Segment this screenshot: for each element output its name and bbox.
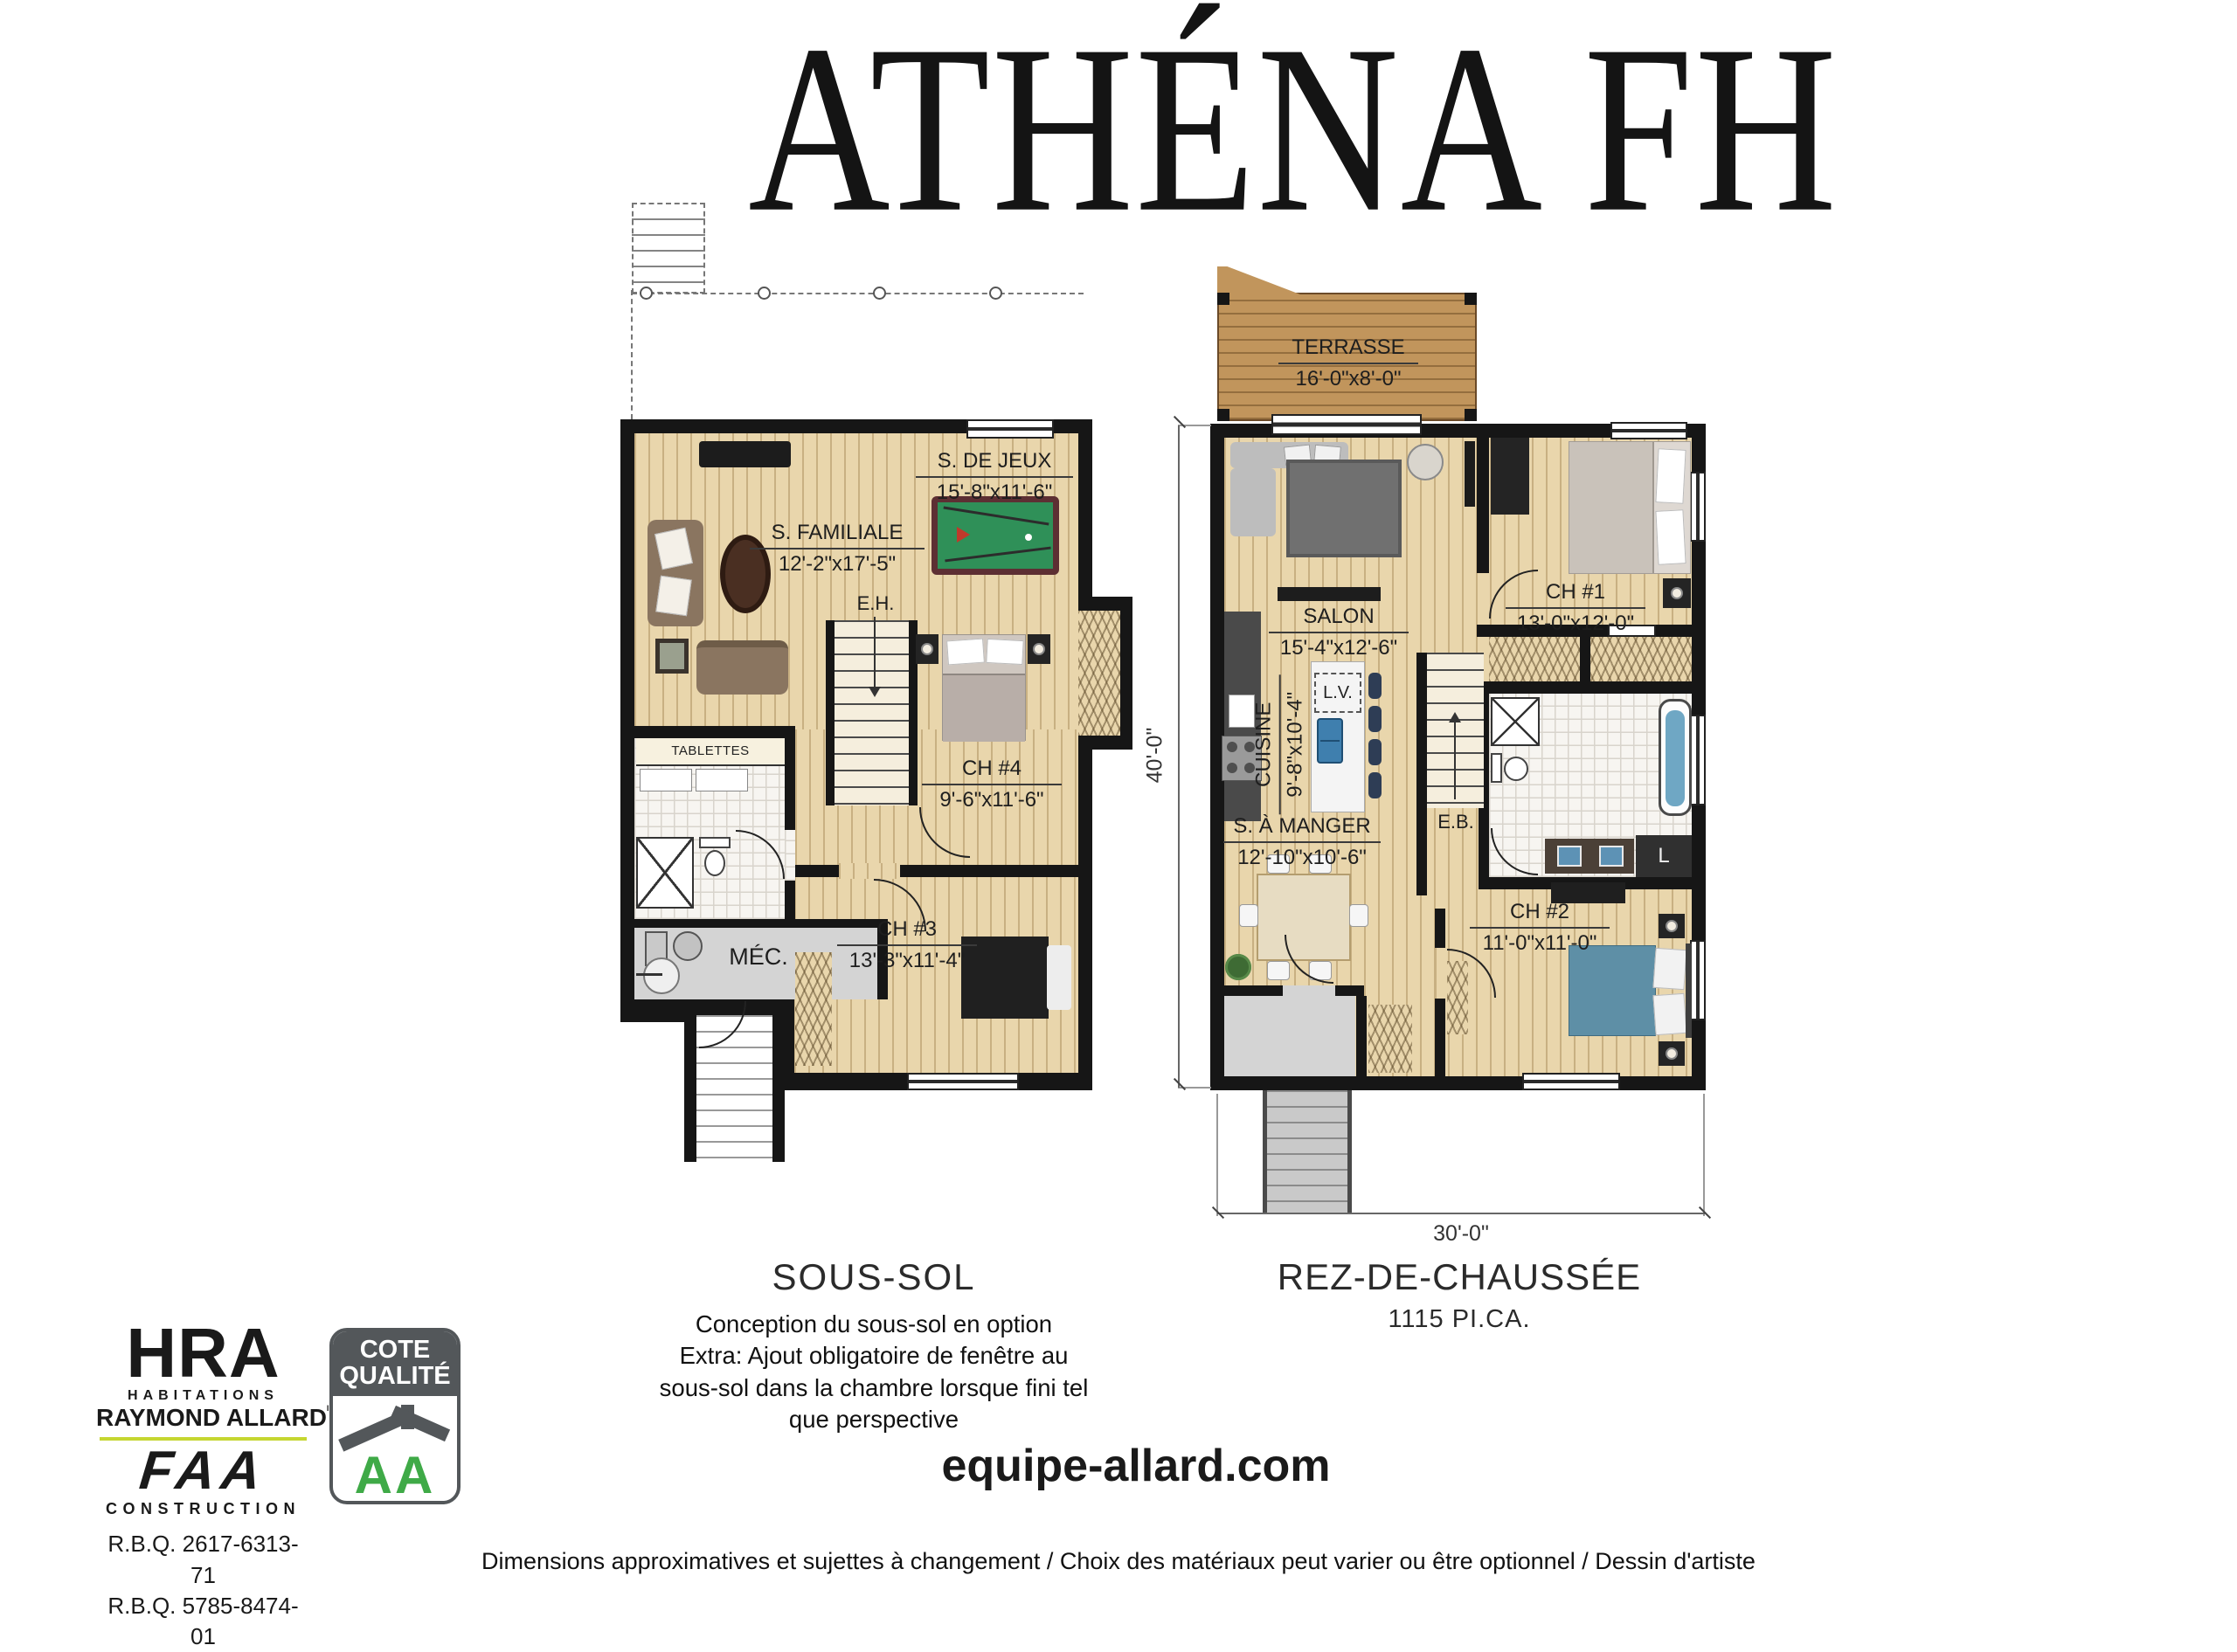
nightstand — [1659, 1041, 1685, 1066]
badge-line2: QUALITÉ — [333, 1363, 457, 1389]
closet-divider — [1580, 637, 1590, 681]
room-label-familiale: S. FAMILIALE 12'-2"x17'-5" — [750, 521, 925, 577]
closet-entry — [1368, 1005, 1412, 1073]
chair — [1267, 961, 1290, 980]
stool — [1368, 739, 1382, 765]
window — [1522, 1073, 1620, 1090]
cabinet — [640, 769, 692, 791]
pool-ball — [1025, 534, 1032, 541]
brand-initials: HRA — [96, 1321, 310, 1386]
wall-salon-ch1 — [1477, 438, 1489, 573]
pillow — [946, 639, 985, 666]
wall-bath-top-g — [1479, 681, 1692, 694]
website: equipe-allard.com — [786, 1440, 1486, 1492]
window — [966, 419, 1054, 439]
toilet-bowl-ground — [1504, 757, 1528, 781]
closet-ch1-strip — [1489, 637, 1692, 681]
page-title: ATHÉNA FH — [680, 0, 1907, 232]
basement-caption: SOUS-SOL — [559, 1256, 1188, 1298]
dishwasher-label: L.V. — [1323, 683, 1353, 702]
vanity — [1545, 839, 1634, 874]
badge-line1: COTE — [333, 1337, 457, 1363]
bed-ch1 — [1569, 441, 1691, 574]
basement-note-3: sous-sol dans la chambre lorsque fini te… — [559, 1372, 1188, 1404]
dim-line-depth — [1178, 425, 1180, 1088]
basement-stair-stub-wall — [684, 1015, 696, 1162]
duvet — [1569, 442, 1654, 573]
brand-rbq1: R.B.Q. 2617-6313-71 — [96, 1529, 310, 1590]
dryer-basement — [673, 931, 703, 961]
bed-ch4 — [942, 634, 1026, 741]
basement-caption-block: SOUS-SOL Conception du sous-sol en optio… — [559, 1256, 1188, 1435]
pillow — [1652, 993, 1686, 1035]
water-heater — [643, 957, 680, 994]
badge-grade: AA — [333, 1445, 457, 1504]
toilet-tank — [699, 837, 731, 848]
ground-caption-block: REZ-DE-CHAUSSÉE 1115 PI.CA. — [1188, 1256, 1730, 1334]
basement-stair-stub-wall — [772, 1015, 785, 1162]
pool-cue — [944, 506, 1049, 525]
brand-rbq2: R.B.Q. 5785-8474-01 — [96, 1591, 310, 1652]
room-label-ch2: CH #2 11'-0"x11'-0" — [1470, 900, 1610, 957]
window — [1690, 715, 1706, 805]
pool-table — [932, 496, 1059, 575]
loveseat — [696, 640, 788, 695]
porch-dashed-beam — [632, 293, 1084, 294]
ground-caption: REZ-DE-CHAUSSÉE — [1188, 1256, 1730, 1298]
shelves-label: TABLETTES — [671, 743, 749, 758]
brand-habitations: HABITATIONS — [96, 1388, 310, 1404]
deck-post-sq — [1465, 409, 1477, 421]
shelf-unit: TABLETTES — [636, 738, 785, 766]
room-label-ch3: CH #3 13'-3"x11'-4" — [837, 917, 977, 974]
tv-unit — [1465, 441, 1475, 507]
chair — [1349, 904, 1368, 927]
room-label-manger: S. À MANGER 12'-10"x10'-6" — [1223, 814, 1381, 871]
basement-note-2: Extra: Ajout obligatoire de fenêtre au — [559, 1340, 1188, 1372]
stool — [1368, 706, 1382, 732]
cabinet — [696, 769, 748, 791]
door-gap-ch3 — [839, 863, 900, 879]
ground-area: 1115 PI.CA. — [1188, 1305, 1730, 1334]
deck-post-sq — [1465, 293, 1477, 305]
pool-rack — [957, 527, 970, 543]
dim-width-label: 30'-0" — [1409, 1221, 1513, 1247]
window — [1690, 472, 1706, 542]
wall-bath-right — [785, 726, 795, 919]
deck-post-sq — [1217, 293, 1229, 305]
washer-ground: L — [1636, 835, 1692, 877]
mech-label: MÉC. — [706, 944, 811, 971]
floorplan-sheet: { "title": "ATHÉNA FH", "basement": { "c… — [0, 0, 2237, 1627]
dishwasher-box: L.V. — [1314, 673, 1361, 713]
sofa-pillow — [655, 576, 691, 617]
shower-ground — [1491, 697, 1540, 746]
shower — [636, 837, 694, 909]
sofa — [648, 520, 703, 626]
stairs-up-label: E.H. — [841, 592, 911, 615]
bathtub — [1659, 699, 1692, 816]
brand-construction: CONSTRUCTION — [96, 1500, 310, 1518]
basement-note-1: Conception du sous-sol en option — [559, 1309, 1188, 1340]
quality-badge: COTE QUALITÉ AA — [329, 1328, 461, 1504]
badge-header: COTE QUALITÉ — [333, 1331, 457, 1396]
room-label-jeux: S. DE JEUX 15'-8"x11'-6" — [916, 449, 1073, 506]
nightstand — [1028, 634, 1050, 664]
roof-icon — [340, 1403, 450, 1448]
room-label-cuisine: CUISINE 9'-8"x10'-4" — [1252, 674, 1309, 814]
bed-ch3-pillows — [1047, 945, 1071, 1010]
chair — [1239, 904, 1258, 927]
deck-post-sq — [1217, 409, 1229, 421]
water-heater-pipe — [636, 973, 662, 976]
wardrobe-ch1 — [1491, 438, 1529, 515]
stairs-arrow-head — [869, 687, 881, 697]
kitchen-sink — [1229, 695, 1255, 728]
stairs-arrow-line — [874, 617, 876, 688]
vanity-sink — [1599, 846, 1624, 867]
island-sink — [1317, 718, 1343, 764]
pool-cue — [945, 547, 1050, 563]
room-label-terrasse: TERRASSE 16'-0"x8'-0" — [1278, 335, 1418, 392]
stairs-down-label: E.B. — [1421, 811, 1491, 833]
wall-entry-closet — [1356, 996, 1367, 1076]
sectional-chaise — [1230, 468, 1276, 536]
wall-stairs-left-g — [1416, 653, 1427, 810]
vanity-sink — [1557, 846, 1582, 867]
deck-post — [989, 287, 1002, 300]
console-table — [1278, 587, 1381, 601]
wall-ch2-west — [1435, 909, 1445, 1090]
stairs-basement — [835, 620, 909, 805]
washer-label: L — [1658, 844, 1669, 867]
dim-extension — [1216, 1094, 1218, 1216]
pillow — [1652, 948, 1686, 990]
stairs-arrow-line-g — [1454, 721, 1456, 799]
stool — [1368, 772, 1382, 798]
door-gap-ch2 — [1435, 948, 1445, 999]
accent-chair — [1407, 444, 1444, 480]
bed-ch2 — [1569, 945, 1656, 1036]
deck-post — [758, 287, 771, 300]
porch-dashed-edge — [631, 290, 633, 419]
duvet — [943, 674, 1025, 742]
door-gap-bath — [785, 830, 795, 881]
plant — [1225, 954, 1251, 980]
nightstand — [916, 634, 938, 664]
headboard-ch2 — [1686, 944, 1692, 1038]
room-label-salon: SALON 15'-4"x12'-6" — [1269, 605, 1409, 661]
stool — [1368, 673, 1382, 699]
wall-stairs-left — [826, 620, 835, 805]
brand-rule — [100, 1437, 307, 1441]
window — [1690, 940, 1706, 1020]
toilet-tank-ground — [1491, 753, 1502, 783]
room-label-ch1: CH #1 13'-0"x12'-0" — [1506, 580, 1645, 637]
window — [907, 1073, 1019, 1090]
pillow — [986, 639, 1023, 665]
dim-line-width — [1217, 1213, 1705, 1214]
wall-bath-top — [634, 726, 785, 738]
pillow — [1655, 448, 1686, 504]
side-table — [655, 639, 689, 674]
dim-extension — [1703, 1094, 1705, 1216]
front-steps — [1263, 1090, 1352, 1213]
porch-dashed-stairs — [632, 203, 705, 294]
basement-note-4: que perspective — [559, 1404, 1188, 1435]
stairs-arrow-head-g — [1449, 712, 1461, 722]
disclaimer: Dimensions approximatives et sujettes à … — [332, 1548, 1905, 1575]
pillow — [1655, 509, 1686, 565]
sofa-pillow — [654, 528, 693, 570]
nightstand — [1659, 914, 1685, 938]
toilet-bowl — [704, 850, 725, 876]
deck-post — [873, 287, 886, 300]
room-label-ch4: CH #4 9'-6"x11'-6" — [922, 757, 1062, 813]
closet-bump — [1078, 611, 1120, 736]
nightstand — [1663, 578, 1691, 608]
brand-raymond-allard: RAYMOND ALLARD — [96, 1404, 327, 1431]
entry-door-gap — [1283, 985, 1335, 996]
patio-door — [1271, 414, 1422, 435]
brand-faa: FAA — [93, 1446, 313, 1497]
area-rug — [1286, 460, 1402, 557]
entry-porch — [1224, 996, 1355, 1076]
brand-block: HRA HABITATIONS RAYMOND ALLARDINC FAA CO… — [96, 1321, 310, 1652]
bathtub-water — [1666, 710, 1685, 806]
tv-console — [699, 441, 791, 467]
dim-depth-label: 40'-0" — [1143, 703, 1168, 808]
deck-post — [640, 287, 653, 300]
terrace-wedge — [1217, 266, 1300, 294]
window — [1610, 422, 1687, 439]
